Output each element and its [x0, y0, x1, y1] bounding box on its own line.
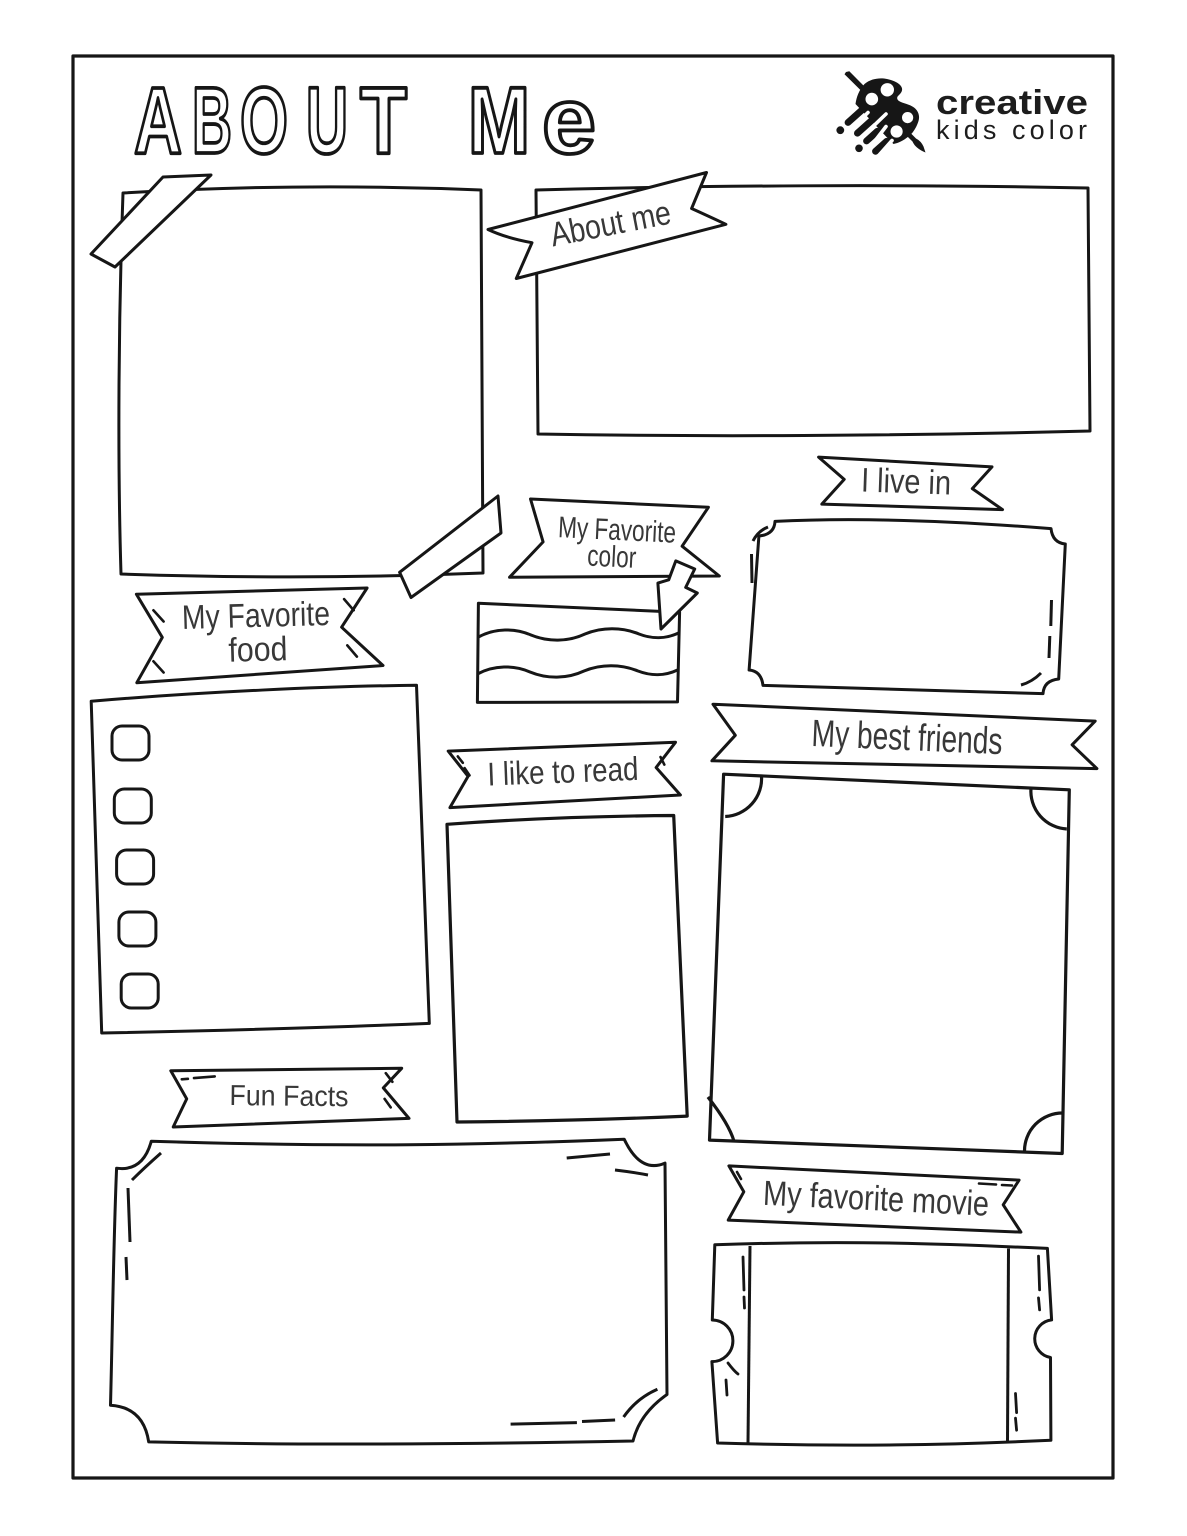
svg-text:U: U: [306, 68, 348, 174]
svg-text:My best friends: My best friends: [811, 713, 1004, 763]
svg-text:kids color: kids color: [936, 115, 1087, 145]
svg-text:O: O: [240, 68, 288, 174]
svg-text:A: A: [134, 68, 182, 174]
svg-text:I live in: I live in: [860, 461, 951, 502]
svg-text:Fun Facts: Fun Facts: [229, 1080, 348, 1113]
svg-text:color: color: [587, 540, 638, 575]
svg-text:e: e: [542, 68, 596, 174]
svg-text:M: M: [468, 68, 530, 174]
svg-text:T: T: [360, 68, 407, 174]
svg-text:food: food: [228, 630, 288, 670]
svg-text:I like to read: I like to read: [487, 750, 639, 793]
svg-text:B: B: [192, 68, 232, 174]
